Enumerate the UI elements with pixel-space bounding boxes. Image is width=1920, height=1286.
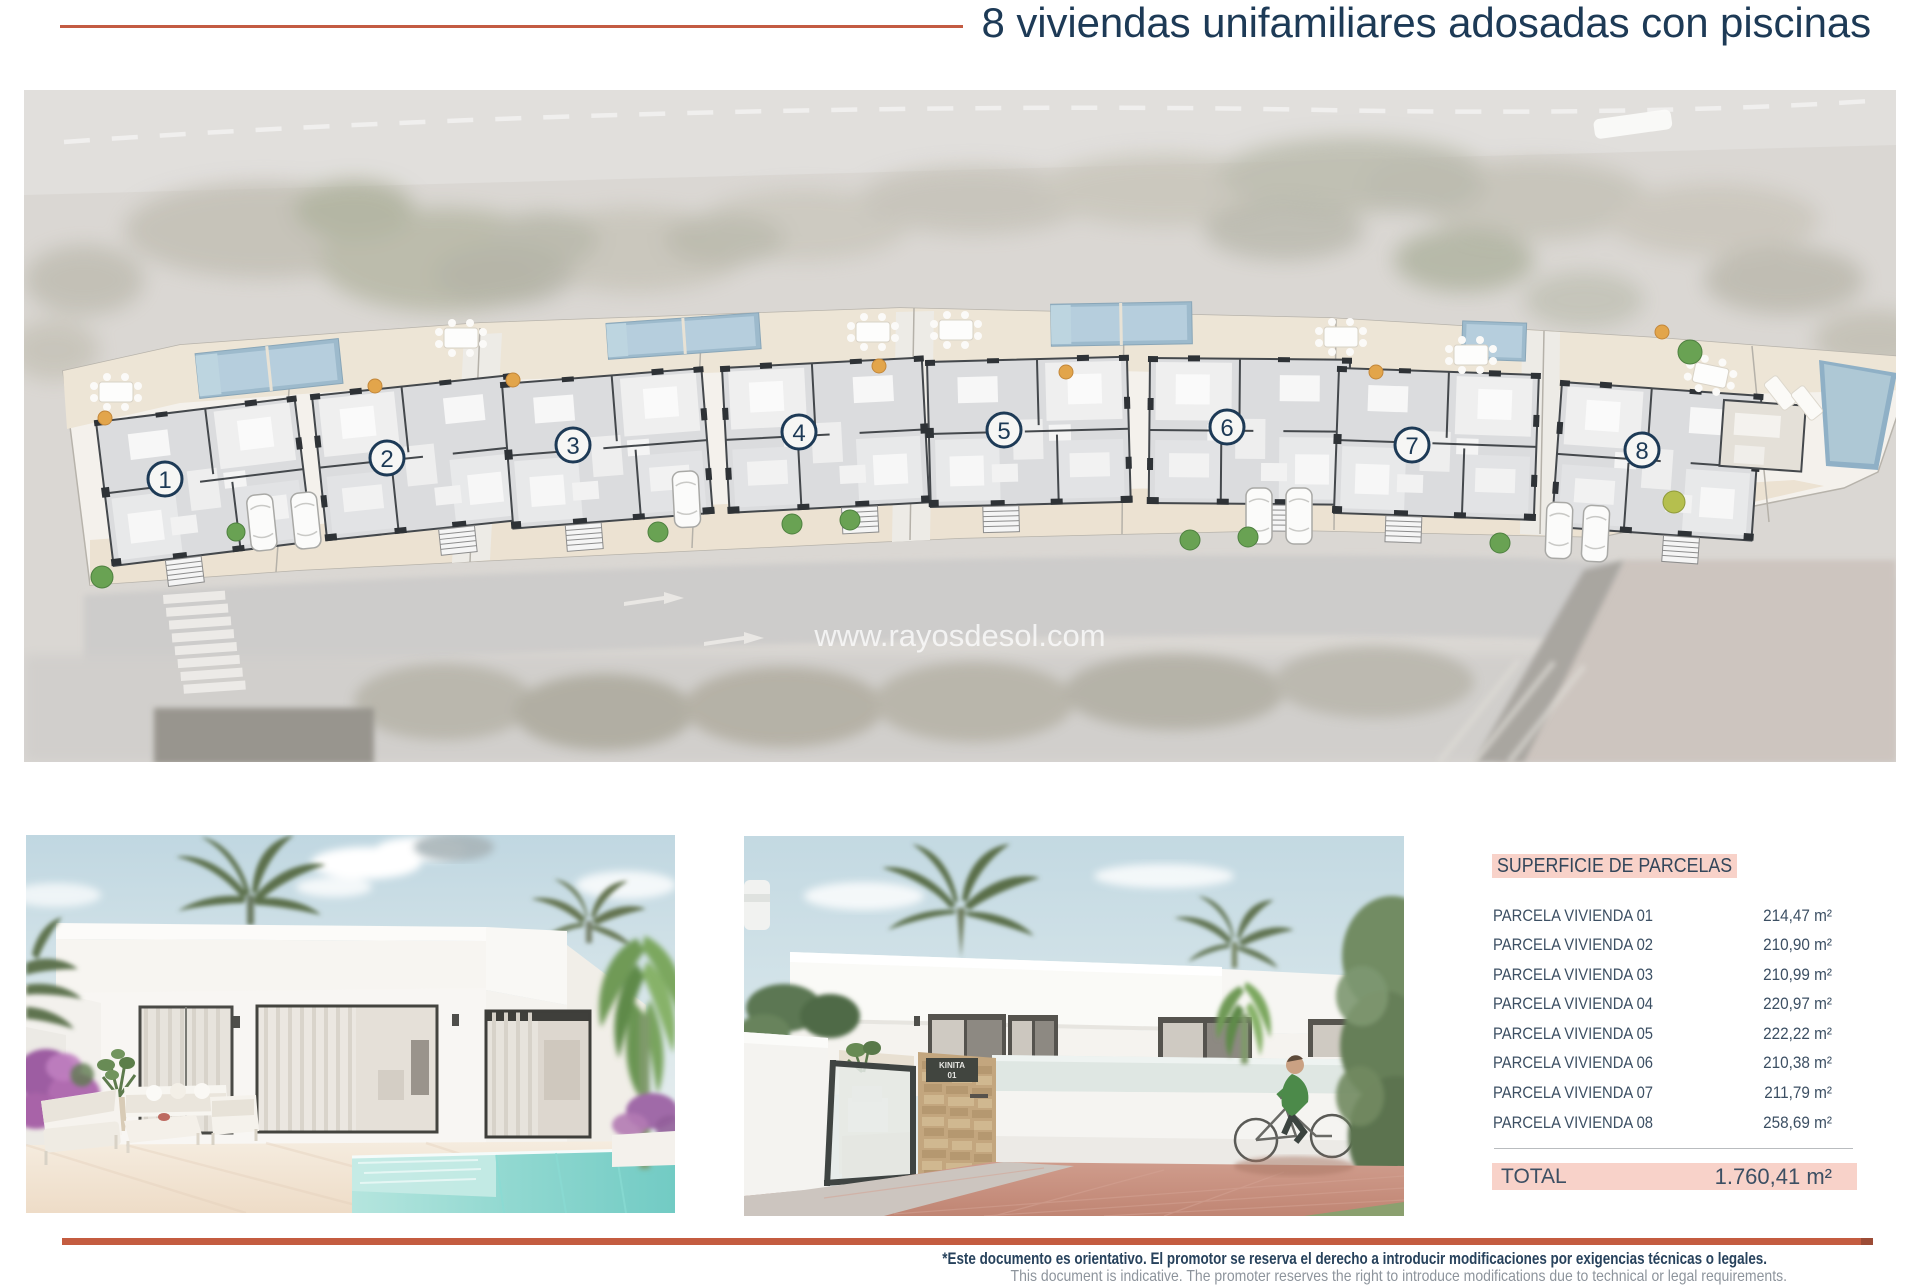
svg-text:01: 01 [948,1071,957,1080]
svg-text:6: 6 [1220,415,1233,442]
svg-text:KINITA: KINITA [939,1061,965,1070]
svg-text:2: 2 [380,446,393,473]
svg-text:3: 3 [566,433,579,460]
svg-text:5: 5 [997,418,1010,445]
svg-text:8: 8 [1635,438,1648,465]
svg-text:7: 7 [1405,433,1418,460]
svg-text:4: 4 [792,420,805,447]
svg-text:1: 1 [158,467,171,494]
svg-text:www.rayosdesol.com: www.rayosdesol.com [813,618,1105,653]
